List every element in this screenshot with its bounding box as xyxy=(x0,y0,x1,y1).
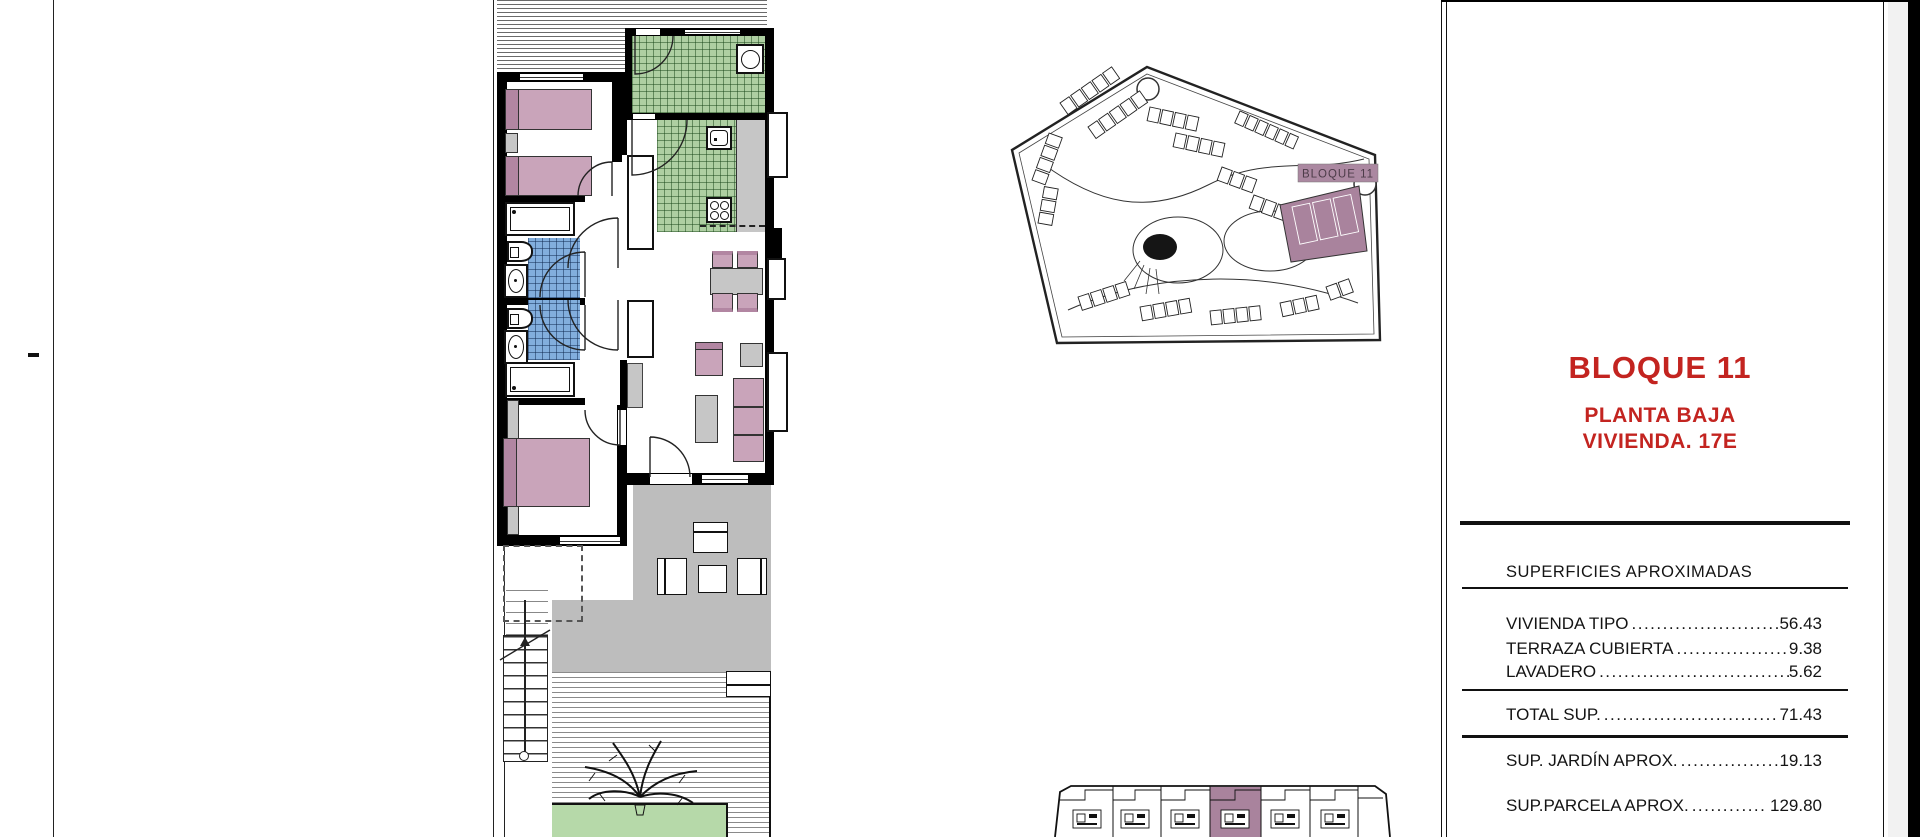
surfaces-heading: SUPERFICIES APROXIMADAS xyxy=(1506,563,1752,582)
page-border-line-left xyxy=(53,0,54,837)
page-margin xyxy=(1888,0,1908,837)
total-row: TOTAL SUP. .............................… xyxy=(1506,705,1822,725)
leader-dots: ................... xyxy=(1674,639,1789,659)
door-arc xyxy=(578,162,612,196)
surface-label: LAVADERO xyxy=(1506,662,1596,682)
site-plan: BLOQUE 11 xyxy=(1008,55,1393,365)
leader-dots: ............ xyxy=(1689,796,1770,816)
door-arc xyxy=(568,218,618,268)
door-arc xyxy=(650,437,690,477)
door-arc xyxy=(632,120,687,175)
door-arc xyxy=(635,36,673,74)
heading-underline xyxy=(1462,587,1848,589)
parcel-value: 129.80 xyxy=(1770,796,1822,816)
leader-dots: ................ xyxy=(1678,751,1780,771)
stairs-break-line xyxy=(500,630,550,660)
garden-value: 19.13 xyxy=(1779,751,1822,771)
garden-row: SUP. JARDÍN APROX. ................ 19.1… xyxy=(1506,751,1822,771)
surface-row: LAVADERO ...............................… xyxy=(1506,662,1822,682)
surface-value: 56.43 xyxy=(1779,614,1822,634)
door-arc xyxy=(540,252,585,297)
leader-dots: ................................ xyxy=(1601,705,1780,725)
door-arc xyxy=(540,305,585,350)
parcel-label: SUP.PARCELA APROX. xyxy=(1506,796,1689,816)
surface-label: VIVIENDA TIPO xyxy=(1506,614,1629,634)
surface-label: TERRAZA CUBIERTA xyxy=(1506,639,1674,659)
screen-edge xyxy=(1908,0,1920,837)
total-label: TOTAL SUP. xyxy=(1506,705,1601,725)
garden-label: SUP. JARDÍN APROX. xyxy=(1506,751,1678,771)
divider-medium xyxy=(1462,735,1848,738)
dwelling-subtitle: VIVIENDA. 17E xyxy=(1500,430,1820,454)
floor-plan xyxy=(490,0,790,837)
total-value: 71.43 xyxy=(1779,705,1822,725)
block-label: BLOQUE 11 xyxy=(1302,169,1374,181)
block-key-plan xyxy=(1045,782,1391,837)
divider-thick xyxy=(1460,521,1850,525)
parcel-row: SUP.PARCELA APROX. ............ 129.80 xyxy=(1506,796,1822,816)
surface-row: VIVIENDA TIPO ..........................… xyxy=(1506,614,1822,634)
page-top-edge xyxy=(1441,0,1920,2)
surface-value: 5.62 xyxy=(1789,662,1822,682)
surface-row: TERRAZA CUBIERTA ................... 9.3… xyxy=(1506,639,1822,659)
leader-dots: ..................................... xyxy=(1596,662,1789,682)
leader-dots: .......................... xyxy=(1629,614,1780,634)
floor-subtitle: PLANTA BAJA xyxy=(1500,404,1820,428)
surface-value: 9.38 xyxy=(1789,639,1822,659)
divider-thin xyxy=(1462,689,1848,691)
architectural-plan-page: BLOQUE 11 BLOQUE 11 PLANTA BAJA VIVIENDA… xyxy=(0,0,1920,837)
door-swing-arcs xyxy=(490,0,790,837)
door-arc xyxy=(568,300,618,350)
pond xyxy=(1143,234,1177,260)
block-title: BLOQUE 11 xyxy=(1500,350,1820,386)
title-panel-border-left xyxy=(1441,0,1447,837)
door-arc xyxy=(585,410,620,445)
page-fold-mark xyxy=(28,353,39,357)
